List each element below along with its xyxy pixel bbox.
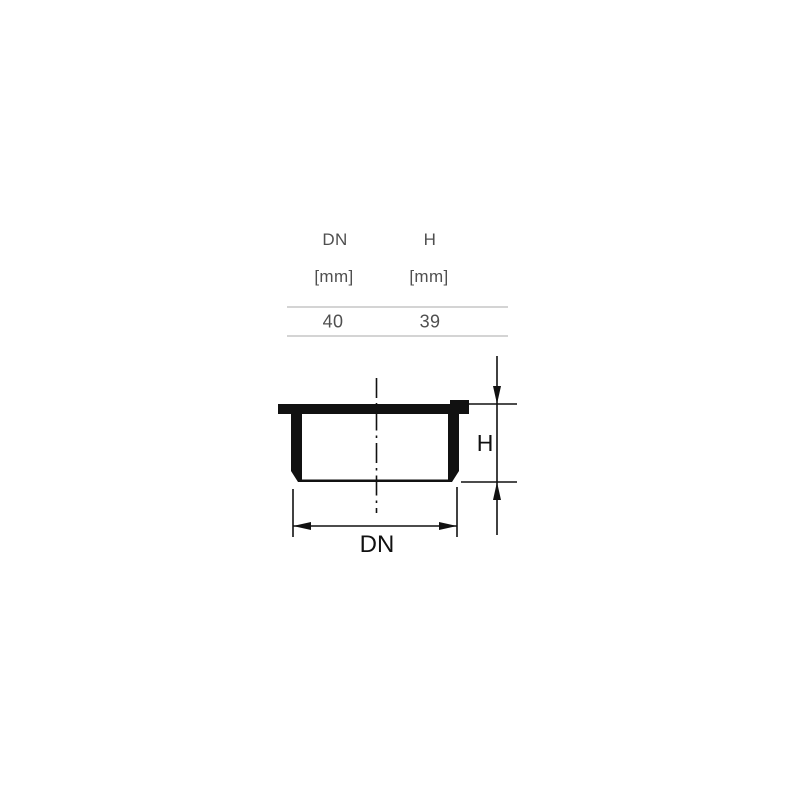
plug-body (291, 414, 459, 482)
h-dim-label: H (477, 430, 494, 456)
arrow-down-icon (493, 386, 501, 404)
arrow-left-icon (293, 522, 311, 530)
page: DN H [mm] [mm] 40 39 H DN (0, 0, 800, 800)
dn-dim-label: DN (360, 531, 395, 558)
plug-flange (278, 404, 469, 414)
arrow-up-icon (493, 482, 501, 500)
technical-drawing: H DN (0, 0, 800, 800)
arrow-right-icon (439, 522, 457, 530)
plug-flange-lip (450, 400, 469, 414)
